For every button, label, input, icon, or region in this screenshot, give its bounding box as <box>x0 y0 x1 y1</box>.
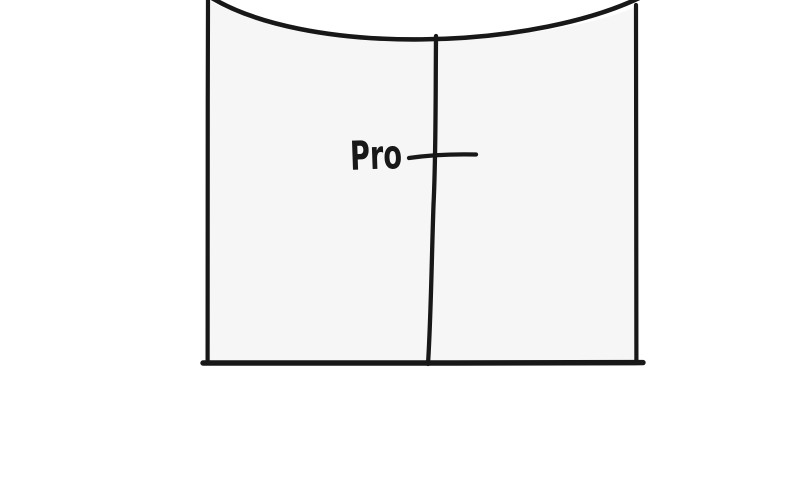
sketch-page: Pro <box>0 0 800 502</box>
chart-panel-fill <box>208 1 636 362</box>
pro-con-tchart-drawing: Pro <box>0 0 800 502</box>
pro-label: Pro <box>349 132 403 180</box>
